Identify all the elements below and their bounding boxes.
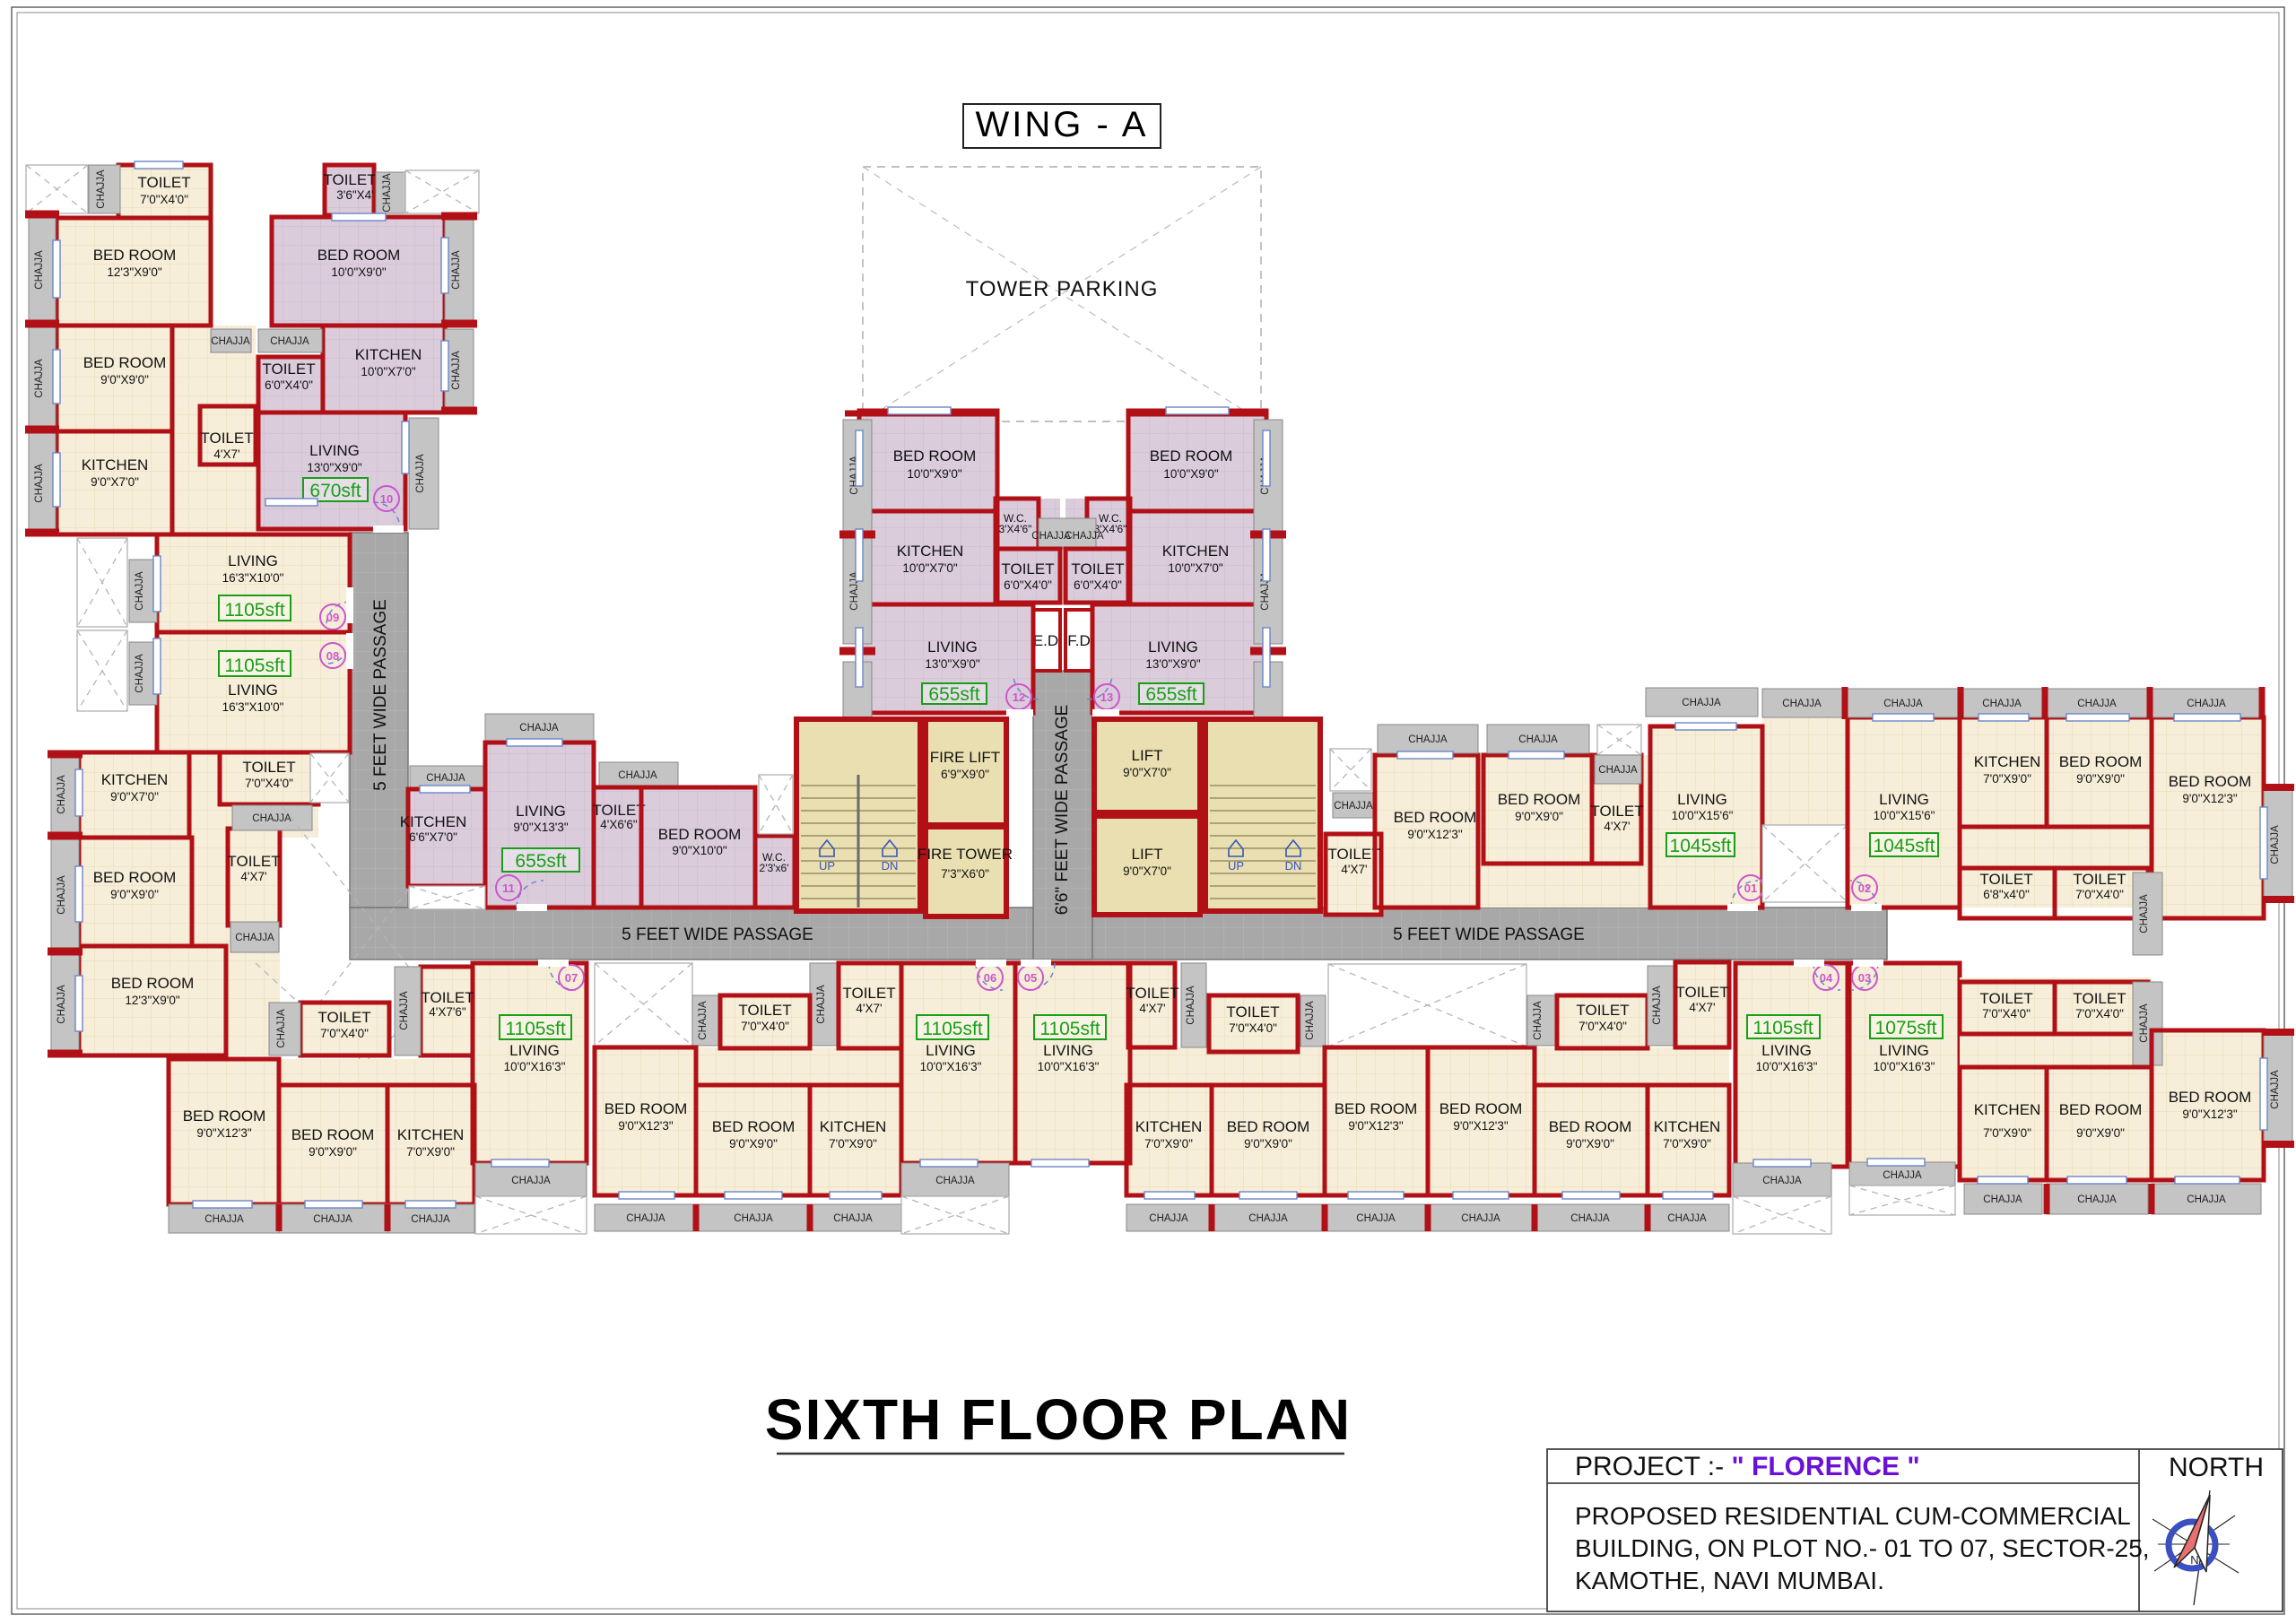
svg-text:TOILET: TOILET (1126, 985, 1178, 1002)
svg-text:16'3"X10'0": 16'3"X10'0" (222, 571, 284, 585)
svg-text:4'X7': 4'X7' (856, 1002, 882, 1015)
svg-text:LIVING: LIVING (1879, 1042, 1929, 1059)
svg-text:3'6"X4': 3'6"X4' (336, 188, 373, 202)
svg-text:TOILET: TOILET (1590, 803, 1643, 820)
svg-text:LIVING: LIVING (926, 1042, 976, 1059)
svg-text:BED ROOM: BED ROOM (658, 826, 742, 843)
svg-text:TOWER PARKING: TOWER PARKING (966, 277, 1159, 301)
svg-text:CHAJJA: CHAJJA (57, 985, 67, 1024)
svg-text:CHAJJA: CHAJJA (426, 773, 465, 784)
svg-text:WING - A: WING - A (976, 105, 1149, 144)
svg-text:03: 03 (1858, 971, 1871, 985)
svg-text:LIVING: LIVING (1043, 1042, 1093, 1059)
svg-text:CHAJJA: CHAJJA (1762, 1176, 1802, 1186)
svg-text:CHAJJA: CHAJJA (1461, 1213, 1500, 1224)
svg-text:TOILET: TOILET (317, 1009, 370, 1026)
svg-text:7'0"X4'0": 7'0"X4'0" (1982, 1007, 2031, 1020)
svg-text:4'X7': 4'X7' (1139, 1002, 1165, 1015)
svg-text:E.D: E.D (1033, 632, 1058, 649)
svg-text:PROPOSED RESIDENTIAL CUM-COMME: PROPOSED RESIDENTIAL CUM-COMMERCIAL (1575, 1502, 2131, 1530)
svg-text:12'3"X9'0": 12'3"X9'0" (125, 994, 179, 1007)
svg-text:KITCHEN: KITCHEN (82, 456, 149, 473)
svg-text:7'0"X4'0": 7'0"X4'0" (320, 1027, 369, 1040)
svg-text:CHAJJA: CHAJJA (411, 1214, 450, 1225)
svg-text:9'0"X12'3": 9'0"X12'3" (2182, 792, 2237, 805)
svg-text:12'3"X9'0": 12'3"X9'0" (107, 265, 161, 279)
svg-text:TOILET: TOILET (200, 430, 253, 447)
svg-text:5 FEET WIDE PASSAGE: 5 FEET WIDE PASSAGE (371, 599, 390, 791)
svg-text:6'0"X4'0": 6'0"X4'0" (1074, 578, 1122, 592)
svg-text:KITCHEN: KITCHEN (101, 771, 169, 788)
svg-text:4'X7': 4'X7' (1689, 1001, 1715, 1014)
svg-text:BED ROOM: BED ROOM (1227, 1118, 1310, 1135)
svg-text:BED ROOM: BED ROOM (83, 354, 167, 371)
svg-text:LIVING: LIVING (228, 682, 278, 699)
svg-text:CHAJJA: CHAJJA (511, 1176, 551, 1186)
svg-text:CHAJJA: CHAJJA (34, 464, 45, 503)
svg-text:BED ROOM: BED ROOM (1150, 447, 1233, 465)
svg-text:CHAJJA: CHAJJA (451, 250, 462, 290)
svg-text:CHAJJA: CHAJJA (1682, 698, 1721, 708)
svg-text:CHAJJA: CHAJJA (1305, 1001, 1316, 1040)
svg-text:9'0"X9'0": 9'0"X9'0" (1566, 1137, 1614, 1151)
svg-text:10'0"X7'0": 10'0"X7'0" (361, 365, 415, 378)
svg-text:BED ROOM: BED ROOM (1439, 1100, 1523, 1117)
svg-text:DN: DN (1285, 859, 1302, 873)
svg-text:1105sft: 1105sft (505, 1019, 565, 1039)
svg-text:FIRE TOWER: FIRE TOWER (918, 846, 1013, 863)
svg-text:1105sft: 1105sft (224, 600, 284, 621)
svg-text:UP: UP (819, 859, 835, 873)
svg-text:6'0"X4'0": 6'0"X4'0" (265, 378, 313, 392)
svg-text:LIVING: LIVING (927, 638, 978, 656)
svg-text:UP: UP (1228, 859, 1244, 873)
svg-text:7'0"X9'0": 7'0"X9'0" (1144, 1137, 1193, 1151)
svg-text:DN: DN (882, 859, 899, 873)
svg-text:CHAJJA: CHAJJA (1883, 1170, 1922, 1181)
svg-text:TOILET: TOILET (1071, 560, 1124, 578)
svg-text:TOILET: TOILET (242, 759, 295, 776)
svg-text:9'0"X7'0": 9'0"X7'0" (91, 475, 139, 489)
svg-text:BED ROOM: BED ROOM (1498, 791, 1581, 808)
svg-text:CHAJJA: CHAJJA (451, 351, 462, 390)
svg-text:CHAJJA: CHAJJA (96, 169, 107, 209)
svg-text:CHAJJA: CHAJJA (1186, 986, 1196, 1025)
svg-text:9'0"X7'0": 9'0"X7'0" (110, 790, 159, 803)
svg-text:BED ROOM: BED ROOM (893, 447, 977, 465)
svg-text:CHAJJA: CHAJJA (1883, 699, 1923, 709)
svg-text:655sft: 655sft (1145, 684, 1196, 705)
svg-text:CHAJJA: CHAJJA (833, 1213, 873, 1224)
svg-text:4'X7': 4'X7' (1604, 820, 1630, 833)
svg-text:CHAJJA: CHAJJA (415, 454, 426, 493)
svg-text:9'0"X9'0": 9'0"X9'0" (110, 888, 159, 901)
svg-text:CHAJJA: CHAJJA (1065, 531, 1104, 542)
svg-text:LIVING: LIVING (1879, 791, 1929, 808)
svg-text:1075sft: 1075sft (1875, 1018, 1937, 1038)
svg-text:7'0"X4'0": 7'0"X4'0" (1229, 1021, 1277, 1035)
svg-text:9'0"X9'0": 9'0"X9'0" (2076, 1126, 2125, 1140)
svg-text:7'0"X9'0": 7'0"X9'0" (1983, 772, 2031, 786)
svg-text:9'0"X12'3": 9'0"X12'3" (196, 1126, 251, 1140)
svg-text:BED ROOM: BED ROOM (1549, 1118, 1632, 1135)
svg-text:1105sft: 1105sft (1039, 1019, 1100, 1039)
svg-text:09: 09 (326, 611, 339, 624)
svg-text:TOILET: TOILET (421, 989, 474, 1006)
svg-text:9'0"X12'3": 9'0"X12'3" (1407, 828, 1462, 841)
svg-text:16'3"X10'0": 16'3"X10'0" (222, 700, 284, 714)
svg-text:CHAJJA: CHAJJA (2187, 1194, 2226, 1205)
svg-text:CHAJJA: CHAJJA (204, 1214, 244, 1225)
svg-text:CHAJJA: CHAJJA (816, 985, 827, 1024)
svg-text:BED ROOM: BED ROOM (93, 247, 177, 264)
svg-text:2'3'x6': 2'3'x6' (760, 862, 789, 874)
svg-text:TOILET: TOILET (2073, 871, 2126, 888)
svg-text:9'0"X12'3": 9'0"X12'3" (2182, 1107, 2237, 1121)
svg-text:TOILET: TOILET (2073, 990, 2126, 1007)
svg-text:6'6" FEET WIDE PASSAGE: 6'6" FEET WIDE PASSAGE (1053, 705, 1072, 916)
svg-text:CHAJJA: CHAJJA (1598, 765, 1638, 776)
svg-text:LIVING: LIVING (1677, 791, 1727, 808)
svg-text:CHAJJA: CHAJJA (1518, 734, 1558, 745)
svg-text:10'0"X16'3": 10'0"X16'3" (920, 1060, 982, 1073)
svg-text:7'0"X4'0": 7'0"X4'0" (140, 193, 188, 206)
svg-text:9'0"X7'0": 9'0"X7'0" (1123, 864, 1171, 878)
svg-text:10: 10 (380, 492, 393, 506)
svg-text:CHAJJA: CHAJJA (2077, 699, 2117, 709)
svg-text:KITCHEN: KITCHEN (397, 1126, 465, 1143)
svg-text:CHAJJA: CHAJJA (34, 250, 45, 290)
svg-text:NORTH: NORTH (2169, 1453, 2264, 1482)
svg-text:10'0"X9'0": 10'0"X9'0" (907, 467, 961, 481)
svg-text:BED ROOM: BED ROOM (111, 975, 195, 992)
svg-text:CHAJJA: CHAJJA (2077, 1194, 2117, 1205)
svg-text:9'0"X13'3": 9'0"X13'3" (513, 821, 568, 834)
svg-text:9'0"X12'3": 9'0"X12'3" (1348, 1119, 1403, 1133)
svg-text:7'0"X9'0": 7'0"X9'0" (829, 1137, 877, 1151)
svg-text:TOILET: TOILET (1979, 990, 2032, 1007)
svg-text:1105sft: 1105sft (922, 1019, 982, 1039)
svg-text:10'0"X7'0": 10'0"X7'0" (1168, 561, 1222, 575)
svg-text:TOILET: TOILET (227, 853, 280, 870)
svg-text:PROJECT :- " FLORENCE ": PROJECT :- " FLORENCE " (1575, 1452, 1920, 1481)
svg-text:KITCHEN: KITCHEN (1974, 753, 2041, 770)
svg-text:655sft: 655sft (515, 851, 566, 872)
svg-text:CHAJJA: CHAJJA (2139, 1003, 2150, 1043)
svg-text:CHAJJA: CHAJJA (1408, 734, 1448, 745)
svg-text:F.D: F.D (1067, 632, 1091, 649)
svg-text:CHAJJA: CHAJJA (252, 813, 291, 824)
svg-text:CHAJJA: CHAJJA (626, 1213, 665, 1224)
svg-text:BED ROOM: BED ROOM (1335, 1100, 1418, 1117)
svg-text:LIVING: LIVING (1148, 638, 1198, 656)
svg-text:9'0"X7'0": 9'0"X7'0" (1123, 766, 1171, 779)
svg-text:CHAJJA: CHAJJA (1570, 1213, 1610, 1224)
svg-text:10'0"X15'6": 10'0"X15'6" (1672, 809, 1734, 822)
svg-text:TOILET: TOILET (1001, 560, 1054, 578)
svg-text:11: 11 (502, 881, 515, 895)
svg-text:CHAJJA: CHAJJA (57, 775, 67, 814)
svg-text:655sft: 655sft (928, 684, 979, 705)
svg-text:LIVING: LIVING (228, 552, 278, 569)
svg-text:BUILDING, ON PLOT NO.- 01 TO 0: BUILDING, ON PLOT NO.- 01 TO 07, SECTOR-… (1575, 1534, 2150, 1562)
svg-text:7'0"X9'0": 7'0"X9'0" (1663, 1137, 1711, 1151)
svg-text:6'9"X9'0": 6'9"X9'0" (941, 768, 989, 781)
svg-text:CHAJJA: CHAJJA (1248, 1213, 1288, 1224)
svg-text:01: 01 (1744, 881, 1757, 895)
svg-text:7'0"X4'0": 7'0"X4'0" (2075, 888, 2124, 901)
svg-text:BED ROOM: BED ROOM (604, 1100, 688, 1117)
svg-text:KAMOTHE, NAVI MUMBAI.: KAMOTHE, NAVI MUMBAI. (1575, 1567, 1884, 1594)
svg-text:KITCHEN: KITCHEN (400, 813, 467, 830)
svg-text:10'0"X7'0": 10'0"X7'0" (902, 561, 957, 575)
svg-text:5 FEET WIDE PASSAGE: 5 FEET WIDE PASSAGE (622, 925, 813, 944)
svg-text:7'0"X4'0": 7'0"X4'0" (2075, 1007, 2124, 1020)
svg-text:CHAJJA: CHAJJA (734, 1213, 773, 1224)
svg-text:BED ROOM: BED ROOM (712, 1118, 796, 1135)
svg-text:1105sft: 1105sft (224, 656, 284, 676)
svg-text:BED ROOM: BED ROOM (317, 247, 401, 264)
svg-text:9'0"X9'0": 9'0"X9'0" (100, 373, 149, 386)
svg-text:KITCHEN: KITCHEN (1974, 1101, 2041, 1118)
svg-text:13'0"X9'0": 13'0"X9'0" (307, 461, 361, 474)
svg-text:CHAJJA: CHAJJA (698, 1001, 709, 1040)
svg-text:10'0"X15'6": 10'0"X15'6" (1874, 809, 1935, 822)
svg-text:BED ROOM: BED ROOM (183, 1107, 266, 1125)
svg-text:LIVING: LIVING (516, 803, 566, 820)
svg-text:9'0"X9'0": 9'0"X9'0" (729, 1137, 778, 1151)
svg-text:TOILET: TOILET (738, 1002, 791, 1019)
svg-text:CHAJJA: CHAJJA (2139, 894, 2150, 934)
svg-text:7'0"X9'0": 7'0"X9'0" (1983, 1126, 2031, 1140)
svg-text:9'0"X9'0": 9'0"X9'0" (1515, 810, 1563, 823)
svg-text:10'0"X16'3": 10'0"X16'3" (1038, 1060, 1100, 1073)
svg-text:7'0"X4'0": 7'0"X4'0" (245, 777, 293, 790)
svg-text:5 FEET WIDE PASSAGE: 5 FEET WIDE PASSAGE (1393, 925, 1585, 944)
svg-text:CHAJJA: CHAJJA (135, 654, 145, 693)
svg-text:TOILET: TOILET (1979, 871, 2032, 888)
svg-text:CHAJJA: CHAJJA (211, 336, 250, 347)
svg-text:FIRE LIFT: FIRE LIFT (930, 749, 1000, 766)
svg-text:4'X7': 4'X7' (1341, 863, 1367, 876)
svg-text:CHAJJA: CHAJJA (1982, 699, 2022, 709)
svg-text:CHAJJA: CHAJJA (2187, 699, 2226, 709)
svg-text:TOILET: TOILET (1675, 984, 1728, 1001)
svg-text:CHAJJA: CHAJJA (1782, 699, 1822, 709)
svg-text:7'0"X9'0": 7'0"X9'0" (406, 1145, 455, 1159)
svg-text:CHAJJA: CHAJJA (57, 875, 67, 915)
svg-text:CHAJJA: CHAJJA (2270, 1070, 2281, 1109)
svg-text:02: 02 (1858, 881, 1871, 895)
svg-text:CHAJJA: CHAJJA (1652, 986, 1663, 1025)
svg-text:TOILET: TOILET (842, 985, 895, 1002)
svg-text:4'X7'6": 4'X7'6" (429, 1005, 466, 1019)
svg-text:KITCHEN: KITCHEN (897, 543, 964, 560)
svg-text:12: 12 (1013, 690, 1025, 704)
svg-text:CHAJJA: CHAJJA (313, 1214, 352, 1225)
svg-text:9'0"X9'0": 9'0"X9'0" (309, 1145, 357, 1159)
svg-text:CHAJJA: CHAJJA (1533, 1001, 1544, 1040)
svg-text:04: 04 (1820, 971, 1833, 985)
svg-text:6'6"X7'0": 6'6"X7'0" (409, 830, 457, 844)
svg-text:10'0"X16'3": 10'0"X16'3" (504, 1060, 566, 1073)
svg-text:CHAJJA: CHAJJA (935, 1176, 975, 1186)
svg-text:9'0"X10'0": 9'0"X10'0" (672, 844, 726, 857)
svg-text:4'X6'6": 4'X6'6" (600, 818, 638, 831)
svg-text:6'0"X4'0": 6'0"X4'0" (1004, 578, 1052, 592)
svg-text:CHAJJA: CHAJJA (618, 770, 657, 781)
svg-text:9'0"X9'0": 9'0"X9'0" (1244, 1137, 1292, 1151)
svg-text:05: 05 (1024, 971, 1037, 985)
svg-text:BED ROOM: BED ROOM (2059, 1101, 2143, 1118)
svg-text:CHAJJA: CHAJJA (399, 991, 410, 1030)
svg-text:TOILET: TOILET (137, 174, 190, 191)
svg-text:4'X7': 4'X7' (213, 447, 239, 461)
svg-text:CHAJJA: CHAJJA (1983, 1194, 2022, 1205)
svg-text:CHAJJA: CHAJJA (2270, 825, 2281, 864)
svg-text:10'0"X16'3": 10'0"X16'3" (1874, 1060, 1935, 1073)
svg-text:3'X4'6": 3'X4'6" (999, 523, 1032, 535)
svg-text:13'0"X9'0": 13'0"X9'0" (925, 657, 979, 671)
svg-text:10'0"X16'3": 10'0"X16'3" (1756, 1060, 1818, 1073)
svg-text:10'0"X9'0": 10'0"X9'0" (331, 265, 386, 279)
svg-text:SIXTH FLOOR PLAN: SIXTH FLOOR PLAN (765, 1387, 1352, 1452)
svg-text:BED ROOM: BED ROOM (1394, 809, 1477, 826)
svg-text:LIVING: LIVING (509, 1042, 560, 1059)
svg-text:9'0"X9'0": 9'0"X9'0" (2076, 772, 2125, 786)
svg-text:TOILET: TOILET (323, 171, 376, 188)
svg-text:TOILET: TOILET (592, 802, 645, 819)
svg-text:N: N (2190, 1553, 2198, 1567)
svg-text:6'8"x4'0": 6'8"x4'0" (1983, 888, 2030, 901)
svg-text:07: 07 (565, 971, 578, 985)
svg-text:CHAJJA: CHAJJA (235, 933, 274, 943)
svg-text:CHAJJA: CHAJJA (1149, 1213, 1188, 1224)
svg-text:BED ROOM: BED ROOM (93, 869, 177, 886)
svg-text:1045sft: 1045sft (1874, 836, 1935, 856)
svg-text:CHAJJA: CHAJJA (1356, 1213, 1396, 1224)
svg-text:LIVING: LIVING (1761, 1042, 1812, 1059)
svg-text:KITCHEN: KITCHEN (1135, 1118, 1203, 1135)
svg-text:1045sft: 1045sft (1670, 836, 1732, 856)
svg-text:CHAJJA: CHAJJA (519, 723, 559, 734)
svg-text:7'0"X4'0": 7'0"X4'0" (1578, 1020, 1627, 1033)
svg-text:TOILET: TOILET (262, 360, 315, 378)
svg-text:CHAJJA: CHAJJA (382, 173, 393, 213)
svg-text:CHAJJA: CHAJJA (276, 1009, 287, 1048)
svg-text:CHAJJA: CHAJJA (34, 359, 45, 398)
svg-text:13: 13 (1100, 690, 1113, 704)
svg-text:7'3"X6'0": 7'3"X6'0" (941, 867, 989, 881)
svg-text:CHAJJA: CHAJJA (270, 336, 309, 347)
svg-text:TOILET: TOILET (1576, 1002, 1629, 1019)
svg-text:LIFT: LIFT (1132, 747, 1163, 764)
svg-text:9'0"X12'3": 9'0"X12'3" (1453, 1119, 1508, 1133)
svg-text:LIFT: LIFT (1132, 846, 1163, 863)
svg-text:13'0"X9'0": 13'0"X9'0" (1145, 657, 1200, 671)
svg-text:BED ROOM: BED ROOM (2169, 773, 2252, 790)
svg-text:KITCHEN: KITCHEN (1654, 1118, 1721, 1135)
svg-text:BED ROOM: BED ROOM (2169, 1089, 2252, 1106)
svg-text:CHAJJA: CHAJJA (1334, 801, 1373, 812)
svg-text:TOILET: TOILET (1226, 1003, 1279, 1020)
svg-text:10'0"X9'0": 10'0"X9'0" (1163, 467, 1218, 481)
svg-text:4'X7': 4'X7' (240, 870, 266, 883)
svg-text:06: 06 (984, 971, 996, 985)
svg-text:1105sft: 1105sft (1752, 1018, 1813, 1038)
svg-text:BED ROOM: BED ROOM (2059, 753, 2143, 770)
svg-text:KITCHEN: KITCHEN (1162, 543, 1230, 560)
svg-text:BED ROOM: BED ROOM (291, 1126, 375, 1143)
svg-text:9'0"X12'3": 9'0"X12'3" (618, 1119, 673, 1133)
svg-text:08: 08 (326, 649, 339, 663)
svg-text:CHAJJA: CHAJJA (135, 571, 145, 611)
svg-text:LIVING: LIVING (309, 442, 360, 459)
svg-text:KITCHEN: KITCHEN (820, 1118, 887, 1135)
svg-text:KITCHEN: KITCHEN (355, 346, 422, 363)
svg-text:CHAJJA: CHAJJA (1667, 1213, 1707, 1224)
svg-text:7'0"X4'0": 7'0"X4'0" (741, 1020, 789, 1033)
